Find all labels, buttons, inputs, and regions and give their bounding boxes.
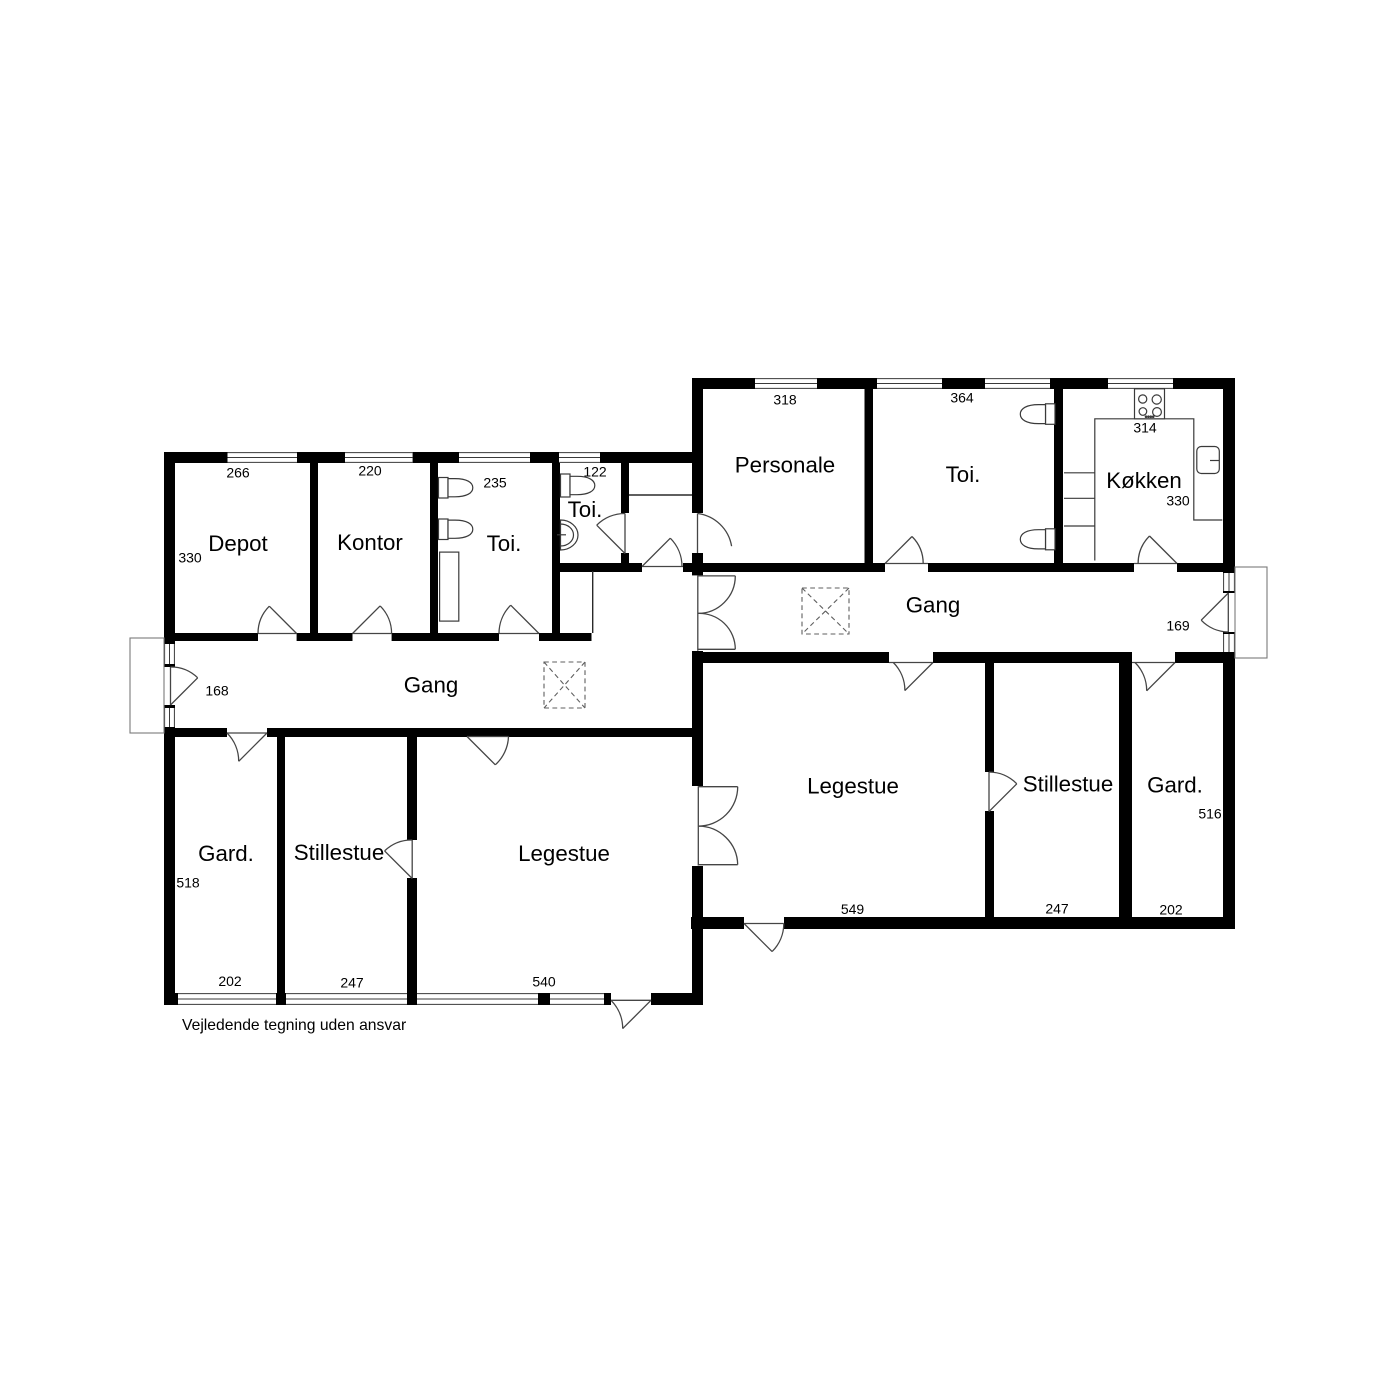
svg-text:202: 202 (1159, 902, 1183, 918)
svg-text:Gard.: Gard. (198, 841, 254, 866)
svg-text:122: 122 (583, 464, 607, 480)
svg-text:Legestue: Legestue (518, 841, 610, 866)
svg-text:Kontor: Kontor (337, 530, 403, 555)
svg-text:Gang: Gang (906, 593, 961, 618)
svg-text:Køkken: Køkken (1106, 468, 1182, 493)
svg-text:168: 168 (205, 683, 229, 699)
svg-text:Vejledende tegning uden ansvar: Vejledende tegning uden ansvar (182, 1017, 406, 1034)
svg-text:Toi.: Toi. (946, 462, 981, 487)
svg-text:Toi.: Toi. (568, 497, 603, 522)
svg-text:169: 169 (1166, 618, 1190, 634)
svg-text:Gang: Gang (404, 673, 459, 698)
svg-text:235: 235 (483, 475, 507, 491)
svg-text:266: 266 (226, 465, 250, 481)
svg-text:Toi.: Toi. (487, 531, 522, 556)
svg-text:314: 314 (1133, 420, 1157, 436)
svg-text:540: 540 (532, 974, 556, 990)
svg-text:Depot: Depot (208, 531, 268, 556)
svg-text:330: 330 (1166, 493, 1190, 509)
svg-text:Stillestue: Stillestue (1023, 772, 1113, 797)
svg-text:549: 549 (841, 901, 865, 917)
svg-text:Stillestue: Stillestue (294, 840, 384, 865)
svg-text:Personale: Personale (735, 453, 835, 478)
svg-text:318: 318 (773, 392, 797, 408)
svg-text:202: 202 (218, 973, 242, 989)
svg-text:516: 516 (1198, 806, 1222, 822)
svg-text:Gard.: Gard. (1147, 773, 1203, 798)
svg-text:247: 247 (1045, 901, 1069, 917)
svg-text:518: 518 (176, 875, 200, 891)
svg-text:247: 247 (340, 975, 364, 991)
svg-text:220: 220 (358, 463, 382, 479)
svg-text:Legestue: Legestue (807, 774, 899, 799)
svg-text:330: 330 (178, 550, 202, 566)
svg-text:364: 364 (950, 390, 974, 406)
